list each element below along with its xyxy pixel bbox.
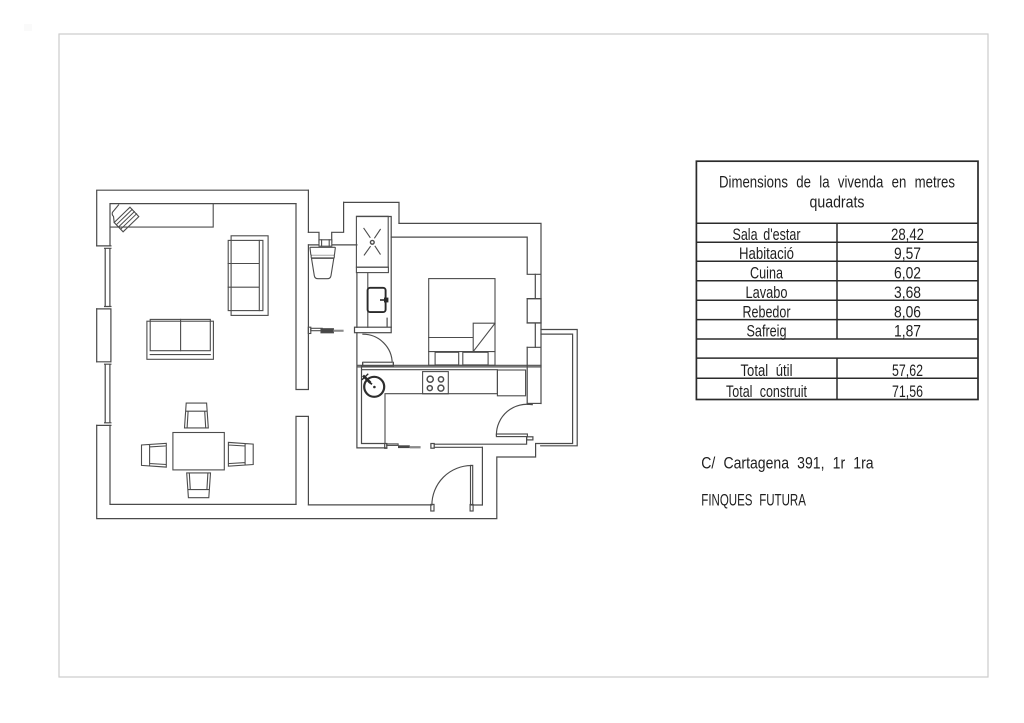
- svg-text:C/ Cartagena 391, 1r 1ra: C/ Cartagena 391, 1r 1ra: [701, 455, 874, 473]
- svg-text:71,56: 71,56: [892, 383, 923, 401]
- svg-text:8,06: 8,06: [894, 303, 921, 321]
- svg-text:9,57: 9,57: [894, 245, 921, 263]
- svg-text:FINQUES FUTURA: FINQUES FUTURA: [701, 492, 806, 510]
- svg-text:Cuina: Cuina: [750, 264, 784, 282]
- svg-text:Rebedor: Rebedor: [743, 303, 791, 321]
- svg-text:Sala d'estar: Sala d'estar: [733, 226, 801, 244]
- svg-text:6,02: 6,02: [894, 264, 921, 282]
- svg-text:Total construit: Total construit: [726, 383, 807, 401]
- svg-text:Dimensions de la vivenda en me: Dimensions de la vivenda en metres: [719, 173, 955, 192]
- svg-text:1,87: 1,87: [894, 323, 921, 341]
- svg-text:quadrats: quadrats: [810, 193, 865, 212]
- svg-text:Safreig: Safreig: [747, 323, 787, 341]
- svg-text:Habitació: Habitació: [739, 245, 794, 263]
- svg-text:Total útil: Total útil: [741, 362, 793, 380]
- svg-text:57,62: 57,62: [892, 362, 923, 380]
- svg-text:3,68: 3,68: [894, 284, 921, 302]
- svg-text:28,42: 28,42: [891, 226, 924, 244]
- svg-text:Lavabo: Lavabo: [746, 284, 788, 302]
